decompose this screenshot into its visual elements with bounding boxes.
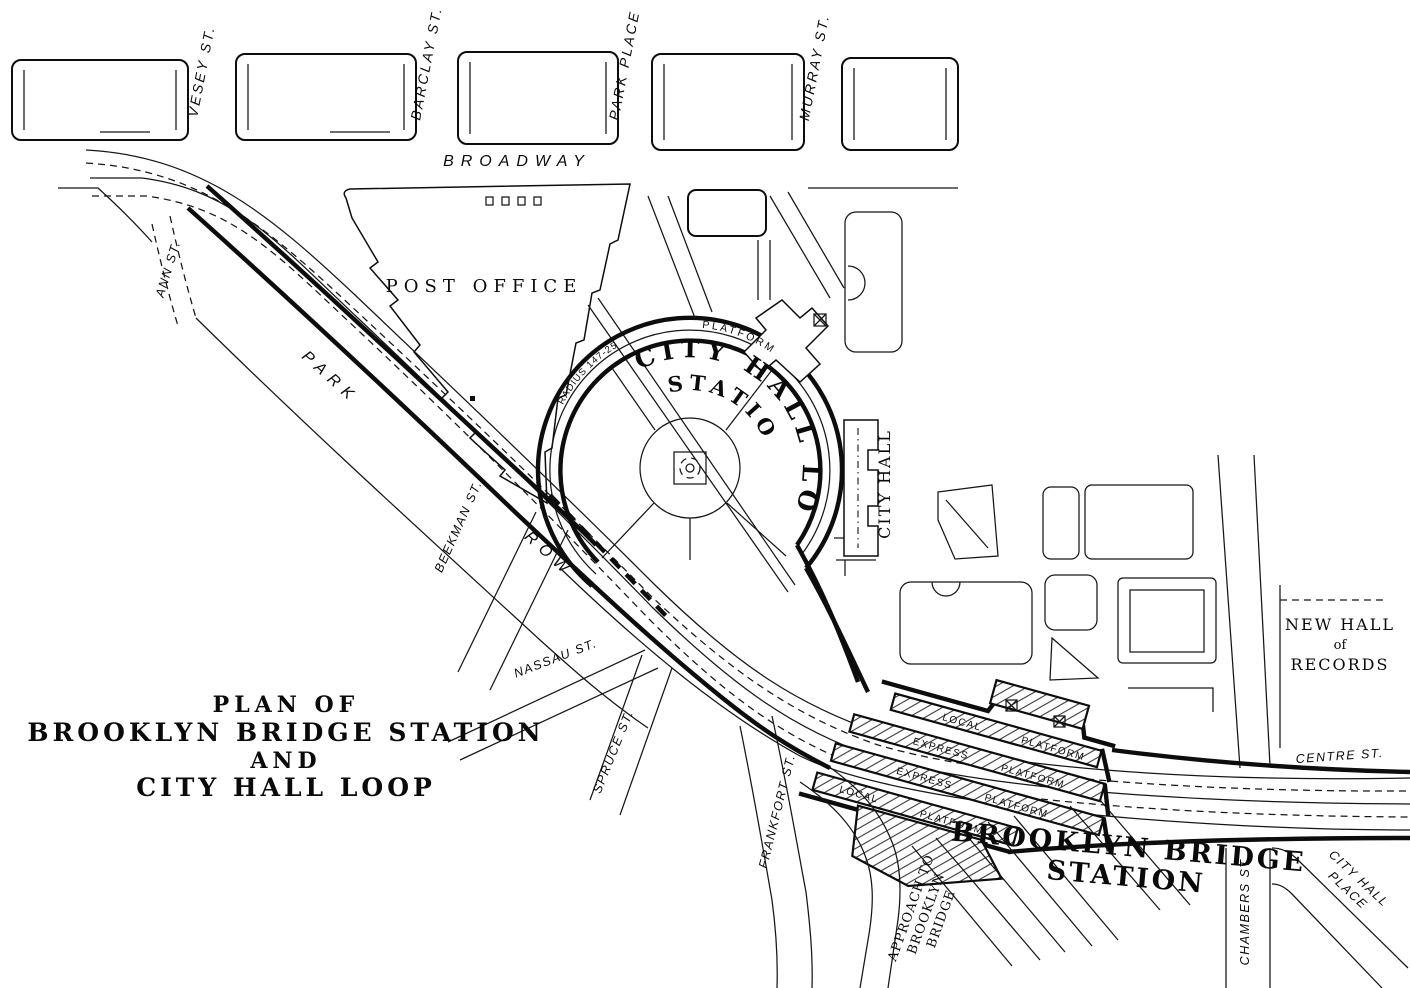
park-walkways: [602, 368, 786, 560]
track-line: [86, 150, 1410, 779]
records-label-3: RECORDS: [1291, 655, 1390, 674]
park-row-north-street: [770, 192, 844, 298]
partial-block: [1128, 688, 1213, 712]
records-label-1: NEW HALL: [1285, 615, 1395, 634]
street-label-broadway: BROADWAY: [443, 153, 591, 170]
title-line-3: AND: [249, 748, 321, 774]
city-block: [1043, 487, 1079, 559]
city-block: [688, 190, 766, 236]
pond-fountain-arc: [848, 266, 865, 300]
city-hall-outline: [844, 420, 878, 556]
street-label-beekman: BEEKMAN ST.: [432, 478, 485, 575]
park-pond: [845, 212, 902, 352]
city-block: [1045, 575, 1097, 630]
title-line-2: BROOKLYN BRIDGE STATION: [27, 718, 544, 747]
block-inner: [1130, 590, 1204, 652]
brooklyn-bridge-station: LOCAL PLATFORM EXPRESS PLATFORM EXPRESS …: [783, 637, 1145, 935]
mail-street-lines: [648, 196, 712, 318]
street-label-park-place: PARK PLACE: [606, 9, 643, 122]
street-label-centre: CENTRE ST.: [1295, 746, 1384, 766]
fountain-center: [686, 464, 694, 472]
title-line-4: CITY HALL LOOP: [136, 773, 436, 802]
street-label-frankfort: FRANKFORT ST.: [756, 752, 798, 869]
loop-exit-inner: [797, 545, 858, 682]
signal-marker: [470, 396, 475, 401]
street-label-murray: MURRAY ST.: [796, 12, 832, 122]
city-hall-building: CITY HALL: [834, 420, 894, 576]
plan-title: PLAN OF BROOKLYN BRIDGE STATION AND CITY…: [27, 692, 544, 802]
block-notch: [932, 582, 960, 596]
centre-street-lines: [1218, 455, 1270, 768]
city-hall-place-label: CITY HALL PLACE: [1315, 847, 1391, 921]
records-label-2: of: [1334, 638, 1348, 653]
broadway-street-labels: VESEY ST. BARCLAY ST. PARK PLACE MURRAY …: [184, 5, 832, 170]
post-office-outline: [344, 184, 630, 503]
street-label-nassau: NASSAU ST.: [512, 636, 599, 681]
building-label-city-hall: CITY HALL: [875, 429, 894, 539]
city-block: [458, 52, 618, 144]
city-block-triangle: [1050, 638, 1098, 680]
city-block: [1118, 578, 1216, 663]
street-label-spruce: SPRUCE ST.: [590, 708, 636, 796]
city-block: [900, 582, 1032, 664]
city-block: [938, 485, 998, 559]
block-diagonal: [946, 500, 988, 548]
map-canvas: VESEY ST. BARCLAY ST. PARK PLACE MURRAY …: [0, 0, 1410, 988]
title-line-1: PLAN OF: [213, 692, 360, 718]
fountain-basin: [680, 458, 700, 478]
brooklyn-bridge-station-label: BROOKLYN BRIDGE STATION: [947, 817, 1307, 909]
building-label-post-office: POST OFFICE: [386, 276, 583, 297]
station-entrance-structure: [990, 680, 1089, 729]
street-label-vesey: VESEY ST.: [184, 24, 218, 119]
city-block: [842, 58, 958, 150]
city-block: [236, 54, 416, 140]
walkway-lines: [758, 240, 770, 300]
city-block: [1085, 485, 1193, 559]
post-office-building: POST OFFICE: [344, 184, 630, 503]
plan-map-svg: VESEY ST. BARCLAY ST. PARK PLACE MURRAY …: [0, 0, 1410, 988]
city-block: [12, 60, 188, 140]
street-label-barclay: BARCLAY ST.: [407, 5, 445, 122]
city-block: [652, 54, 804, 150]
new-hall-of-records-label: NEW HALL of RECORDS: [1285, 615, 1395, 674]
